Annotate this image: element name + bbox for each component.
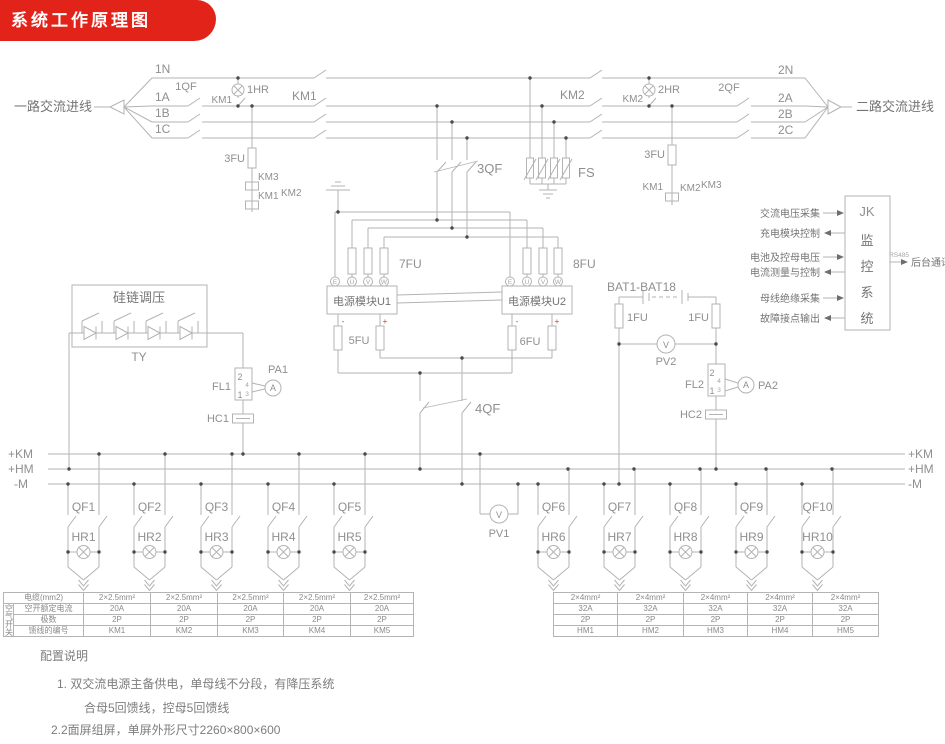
- monitor-signal-1: 充电模块控制: [760, 227, 820, 240]
- hm-current-cell: 32A: [554, 604, 618, 615]
- km-id-cell: KM1: [84, 626, 151, 637]
- line-2a-label: 2A: [778, 91, 793, 105]
- breaker-2qf-contacts: [737, 98, 749, 138]
- u2-terminal-v: V: [541, 279, 546, 286]
- breaker-4qf-label: 4QF: [475, 401, 500, 416]
- feeder-qf5-label: QF5: [338, 500, 362, 514]
- monitor-signal-5: 故障接点输出: [760, 312, 820, 325]
- hm-id-cell: HM3: [684, 626, 748, 637]
- feeder-qf1-label: QF1: [72, 500, 96, 514]
- hm-poles-cell: 2P: [554, 615, 618, 626]
- km-current-cell: 20A: [218, 604, 284, 615]
- ammeter-pa1-letter: A: [270, 383, 276, 393]
- line-1a-label: 1A: [155, 90, 170, 104]
- shunt-fl2-label: FL2: [685, 379, 704, 391]
- hc2-label: HC2: [680, 409, 702, 421]
- module-interlink: [397, 292, 502, 303]
- coil-km2-left-label: KM2: [281, 188, 302, 199]
- voltmeter-pv2-label: PV2: [656, 356, 677, 368]
- feeder-hr5-label: HR5: [337, 530, 361, 544]
- line-2b-label: 2B: [778, 107, 793, 121]
- regulator-title: 硅链调压: [113, 290, 165, 305]
- ac-incoming-right: [805, 78, 852, 138]
- km-poles-cell: 2P: [284, 615, 351, 626]
- km-id-cell: KM2: [151, 626, 218, 637]
- u1-terminal-w: W: [381, 279, 388, 286]
- coil-km2-right-label: KM2: [680, 183, 701, 194]
- feeder-qf9-label: QF9: [740, 500, 764, 514]
- incoming-left-label: 一路交流进线: [14, 99, 92, 114]
- monitor-char-2: 控: [860, 259, 873, 274]
- km-cable-cell: 2×2.5mm²: [284, 593, 351, 604]
- monitor-char-1: 监: [860, 233, 873, 248]
- notes-line-1: 1. 双交流电源主备供电，单母线不分段，有降压系统: [57, 675, 334, 692]
- bus-hm-left-label: +HM: [8, 462, 34, 476]
- coil-km1-left-label: KM1: [258, 191, 279, 202]
- km-id-cell: KM5: [351, 626, 414, 637]
- km2-aux-label: KM2: [622, 94, 643, 105]
- u2-plus-sign: +: [555, 317, 560, 326]
- module-input-bus: [335, 212, 558, 277]
- module-u1-label: 电源模块U1: [333, 294, 391, 308]
- hm-current-cell: 32A: [684, 604, 748, 615]
- hm-id-cell: HM5: [813, 626, 879, 637]
- fl1-terminal-1: 1: [237, 390, 242, 400]
- fuse-3fu-right-label: 3FU: [644, 149, 665, 161]
- monitor-signal-3: 电流测量与控制: [750, 266, 820, 279]
- hm-current-cell: 32A: [748, 604, 813, 615]
- hm-poles-cell: 2P: [813, 615, 879, 626]
- km-current-cell: 20A: [351, 604, 414, 615]
- coil-km1-right-label: KM1: [642, 182, 663, 193]
- fuse-1fu-right-label: 1FU: [688, 312, 709, 324]
- dc-buses: [48, 454, 905, 484]
- hm-id-cell: HM1: [554, 626, 618, 637]
- feeder-qf6-label: QF6: [542, 500, 566, 514]
- arrester-fs-label: FS: [578, 165, 595, 180]
- table-row: 2P 2P 2P 2P 2P: [554, 615, 879, 626]
- dc-output: [334, 326, 556, 373]
- feeder-qf5: [332, 454, 373, 591]
- hm-feeder-spec-table: 2×4mm² 2×4mm² 2×4mm² 2×4mm² 2×4mm² 32A 3…: [553, 592, 879, 637]
- table-row: 电缆(mm2) 2×2.5mm² 2×2.5mm² 2×2.5mm² 2×2.5…: [4, 593, 414, 604]
- table-row: 32A 32A 32A 32A 32A: [554, 604, 879, 615]
- u2-terminal-w: W: [555, 279, 562, 286]
- notes-line-2: 合母5回馈线，控母5回馈线: [84, 699, 229, 716]
- comm-protocol-label: RS485: [889, 252, 909, 259]
- monitor-signal-2: 电池及控母电压: [750, 251, 820, 264]
- feeder-hr2-label: HR2: [137, 530, 161, 544]
- km-poles-cell: 2P: [151, 615, 218, 626]
- hm-current-cell: 32A: [618, 604, 684, 615]
- fuse-6fu-label: 6FU: [520, 336, 541, 348]
- diode-cells: [82, 313, 198, 340]
- fl2-terminal-3: 3: [717, 387, 721, 394]
- hc1-label: HC1: [207, 413, 229, 425]
- line-1c-label: 1C: [155, 122, 171, 136]
- km-poles-cell: 2P: [218, 615, 284, 626]
- km-current-cell: 20A: [84, 604, 151, 615]
- breaker-3qf-label: 3QF: [477, 161, 502, 176]
- km1-main-label: KM1: [292, 89, 317, 103]
- km-cable-cell: 2×2.5mm²: [84, 593, 151, 604]
- feeder-hr7-label: HR7: [607, 530, 631, 544]
- fl2-terminal-2: 2: [709, 368, 714, 378]
- ac-phase-lines: [152, 70, 805, 138]
- voltmeter-pv1-label: PV1: [489, 528, 510, 540]
- km-cable-cell: 2×2.5mm²: [351, 593, 414, 604]
- bus-km-left-label: +KM: [8, 447, 33, 461]
- feeder-qf4: [266, 454, 307, 591]
- incoming-right-label: 二路交流进线: [856, 99, 934, 114]
- voltmeter-pv1-letter: V: [496, 510, 502, 520]
- fl2-terminal-4: 4: [717, 378, 721, 385]
- hm-cable-cell: 2×4mm²: [618, 593, 684, 604]
- km-id-cell: KM4: [284, 626, 351, 637]
- battery-label: BAT1-BAT18: [607, 280, 676, 294]
- breaker-4qf: [420, 358, 471, 484]
- u1-terminal-e: E: [333, 279, 338, 286]
- feeder-qf10-label: QF10: [802, 500, 832, 514]
- fuse-7fu-8fu: [348, 248, 562, 277]
- breaker-1qf-label: 1QF: [175, 81, 197, 93]
- ground-icon: [539, 190, 557, 198]
- ammeter-pa2-letter: A: [743, 380, 749, 390]
- side-label-air-switch: 空气开关: [4, 604, 14, 637]
- u1-minus-sign: -: [342, 317, 345, 326]
- fl2-terminal-1: 1: [709, 386, 714, 396]
- line-1b-label: 1B: [155, 106, 170, 120]
- monitor-signal-4: 母线绝缘采集: [760, 292, 820, 305]
- hm-poles-cell: 2P: [618, 615, 684, 626]
- feeder-hr3-label: HR3: [204, 530, 228, 544]
- ammeter-pa2-label: PA2: [758, 380, 778, 392]
- monitor-char-3: 系: [860, 285, 873, 300]
- fuse-3fu-left-label: 3FU: [224, 153, 245, 165]
- hm-cable-cell: 2×4mm²: [748, 593, 813, 604]
- table-row: 馈线的编号 KM1 KM2 KM3 KM4 KM5: [4, 626, 414, 637]
- monitor-jk: JK: [859, 204, 875, 219]
- ac-incoming-left: [94, 78, 152, 138]
- hm-id-cell: HM4: [748, 626, 813, 637]
- bus-km-right-label: +KM: [908, 447, 933, 461]
- feeder-hr8-label: HR8: [673, 530, 697, 544]
- lamp-branch-2hr: [643, 78, 656, 106]
- line-2n-label: 2N: [778, 63, 793, 77]
- bus-m-left-label: -M: [14, 477, 28, 491]
- comm-label: 后台通讯: [911, 256, 945, 269]
- table-row: 空气开关 空开额定电流 20A 20A 20A 20A 20A: [4, 604, 414, 615]
- feeder-hr1-label: HR1: [71, 530, 95, 544]
- hm-cable-cell: 2×4mm²: [554, 593, 618, 604]
- row-header-feeder-id: 馈线的编号: [14, 626, 84, 637]
- u2-minus-sign: -: [516, 317, 519, 326]
- notes-title: 配置说明: [40, 647, 88, 664]
- u2-terminal-u: U: [525, 279, 530, 286]
- fl1-terminal-4: 4: [245, 382, 249, 389]
- hm-id-cell: HM2: [618, 626, 684, 637]
- hm-cable-cell: 2×4mm²: [813, 593, 879, 604]
- fuse-5fu-label: 5FU: [349, 335, 370, 347]
- lamp-1hr-label: 1HR: [247, 84, 269, 96]
- bus-hm-right-label: +HM: [908, 462, 934, 476]
- breaker-3qf: [434, 106, 478, 237]
- km1-aux-label: KM1: [211, 95, 232, 106]
- line-1n-label: 1N: [155, 62, 170, 76]
- breaker-1qf-contacts: [188, 98, 200, 138]
- monitor-char-4: 统: [860, 311, 873, 326]
- hm-cable-cell: 2×4mm²: [684, 593, 748, 604]
- earth-connection: [326, 182, 350, 212]
- feeder-hr6-label: HR6: [541, 530, 565, 544]
- notes-line-3: 2.2面屏组屏，单屏外形尺寸2260×800×600: [51, 721, 280, 738]
- hm-poles-cell: 2P: [684, 615, 748, 626]
- shunt-fl1-label: FL1: [212, 381, 231, 393]
- table-row: 极数 2P 2P 2P 2P 2P: [4, 615, 414, 626]
- fuse-7fu-label: 7FU: [399, 257, 422, 271]
- fl1-terminal-3: 3: [245, 391, 249, 398]
- ground-icon: [326, 182, 350, 212]
- u2-terminal-e: E: [508, 279, 513, 286]
- u1-plus-sign: +: [383, 317, 388, 326]
- hm-current-cell: 32A: [813, 604, 879, 615]
- km-poles-cell: 2P: [351, 615, 414, 626]
- feeder-qf2-label: QF2: [138, 500, 162, 514]
- breaker-2qf-label: 2QF: [718, 82, 740, 94]
- lamp-branch-1hr: [232, 78, 245, 106]
- u1-terminal-u: U: [350, 279, 355, 286]
- silicon-chain-regulator: [69, 285, 243, 470]
- contactor-km1-contacts: [314, 70, 326, 138]
- feeder-qf3-label: QF3: [205, 500, 229, 514]
- table-row: 2×4mm² 2×4mm² 2×4mm² 2×4mm² 2×4mm²: [554, 593, 879, 604]
- line-2c-label: 2C: [778, 123, 794, 137]
- u1-terminal-v: V: [366, 279, 371, 286]
- feeder-qf4-label: QF4: [272, 500, 296, 514]
- feeder-qf8-label: QF8: [674, 500, 698, 514]
- fuse-8fu-label: 8FU: [573, 257, 596, 271]
- feeder-qf1: [66, 454, 107, 591]
- feeder-qf3: [199, 454, 240, 591]
- km2-main-label: KM2: [560, 88, 585, 102]
- feeder-qf7-label: QF7: [608, 500, 632, 514]
- row-header-current: 空开额定电流: [14, 604, 84, 615]
- km-current-cell: 20A: [151, 604, 218, 615]
- coil-km3-left-label: KM3: [258, 172, 279, 183]
- bus-m-right-label: -M: [908, 477, 922, 491]
- row-header-poles: 极数: [14, 615, 84, 626]
- control-branch-right: [666, 106, 679, 205]
- voltmeter-pv2-letter: V: [663, 340, 669, 350]
- feeder-qf2: [132, 454, 173, 591]
- fl1-terminal-2: 2: [237, 372, 242, 382]
- feeder-hr9-label: HR9: [739, 530, 763, 544]
- km-id-cell: KM3: [218, 626, 284, 637]
- regulator-tag: TY: [131, 350, 146, 364]
- contactor-km2-contacts: [590, 70, 602, 138]
- fuse-1fu-left-label: 1FU: [627, 312, 648, 324]
- km-feeder-spec-table: 电缆(mm2) 2×2.5mm² 2×2.5mm² 2×2.5mm² 2×2.5…: [3, 592, 414, 637]
- km-cable-cell: 2×2.5mm²: [218, 593, 284, 604]
- row-header-cable: 电缆(mm2): [4, 593, 84, 604]
- lamp-2hr-label: 2HR: [658, 84, 680, 96]
- km-current-cell: 20A: [284, 604, 351, 615]
- monitor-signal-0: 交流电压采集: [760, 207, 820, 220]
- table-row: HM1 HM2 HM3 HM4 HM5: [554, 626, 879, 637]
- feeder-hr10-label: HR10: [802, 530, 833, 544]
- feeder-hr4-label: HR4: [271, 530, 295, 544]
- module-u2-label: 电源模块U2: [508, 294, 566, 308]
- hm-poles-cell: 2P: [748, 615, 813, 626]
- km-poles-cell: 2P: [84, 615, 151, 626]
- coil-km3-right-label: KM3: [701, 180, 722, 191]
- ammeter-pa1-label: PA1: [268, 364, 288, 376]
- km-cable-cell: 2×2.5mm²: [151, 593, 218, 604]
